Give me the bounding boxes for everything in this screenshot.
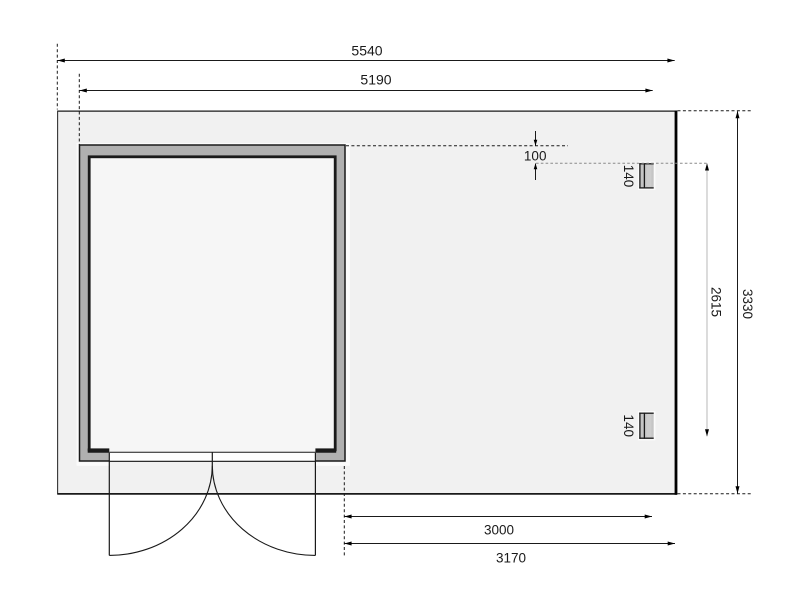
svg-text:5540: 5540: [351, 42, 382, 58]
svg-text:3170: 3170: [496, 550, 526, 565]
svg-text:5190: 5190: [360, 71, 391, 87]
svg-text:2615: 2615: [709, 287, 724, 317]
svg-text:140: 140: [621, 414, 636, 437]
svg-text:100: 100: [524, 148, 547, 163]
svg-text:3330: 3330: [740, 289, 755, 319]
svg-text:3000: 3000: [484, 523, 514, 538]
svg-text:140: 140: [621, 165, 636, 188]
